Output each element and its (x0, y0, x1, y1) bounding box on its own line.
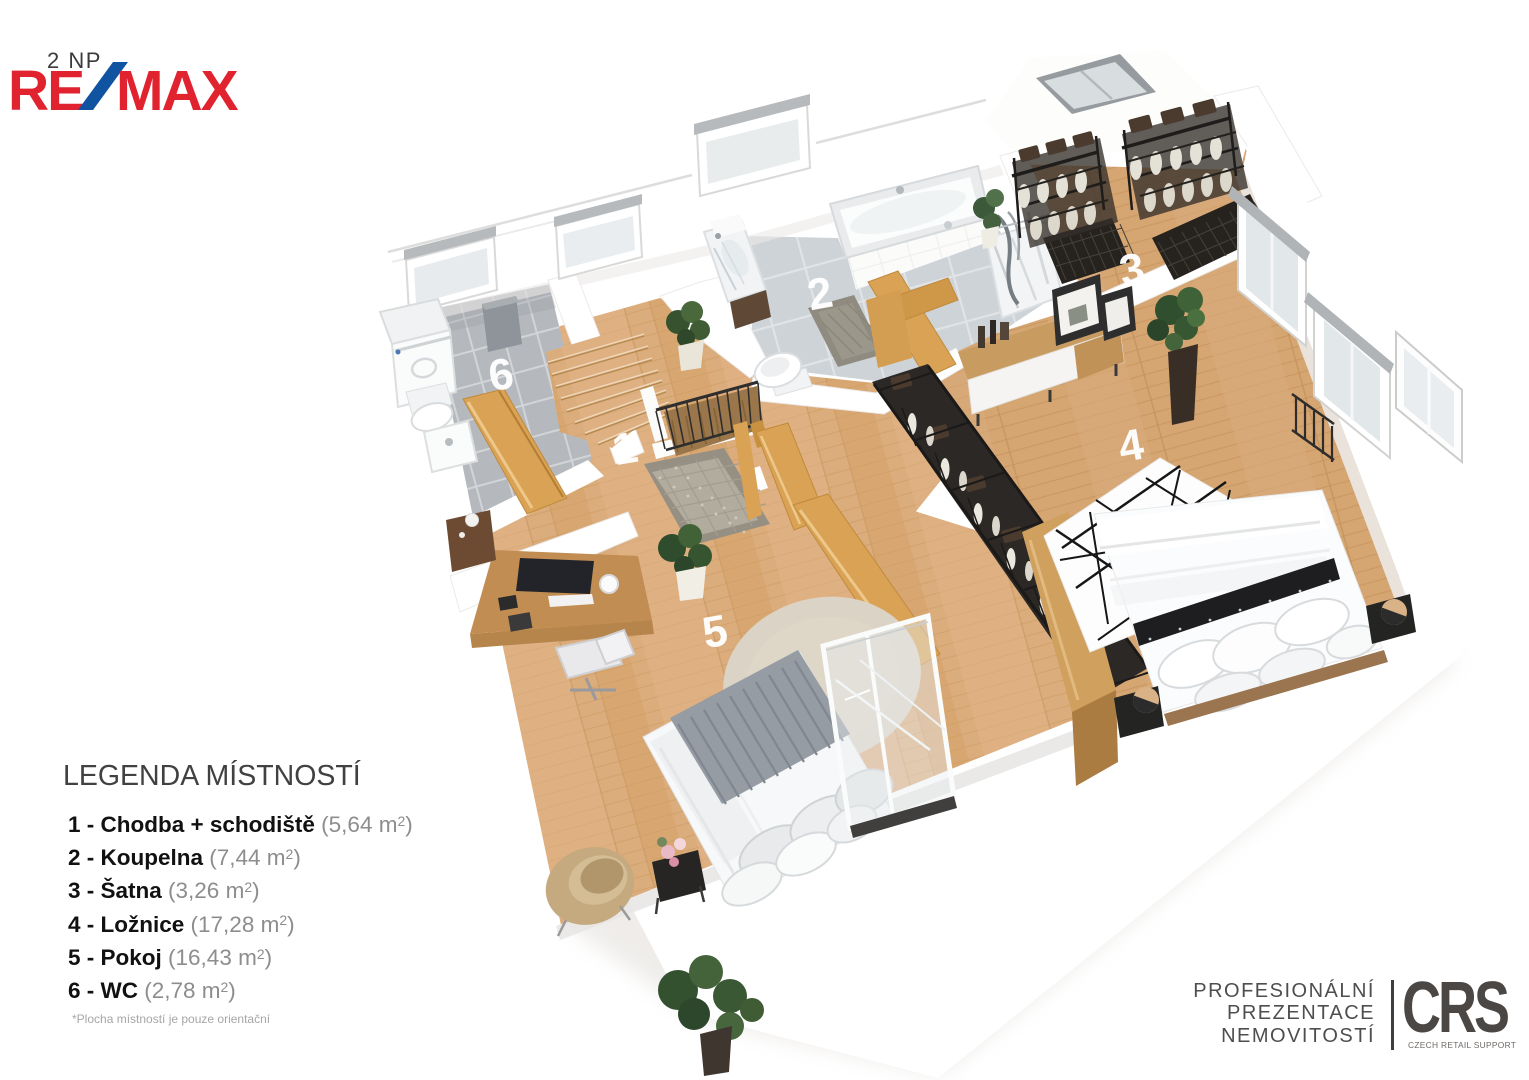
svg-text:CZECH RETAIL SUPPORT: CZECH RETAIL SUPPORT (1408, 1040, 1516, 1050)
svg-text:MAX: MAX (116, 60, 239, 118)
svg-text:CRS: CRS (1402, 970, 1508, 1048)
svg-text:RE: RE (8, 60, 83, 118)
